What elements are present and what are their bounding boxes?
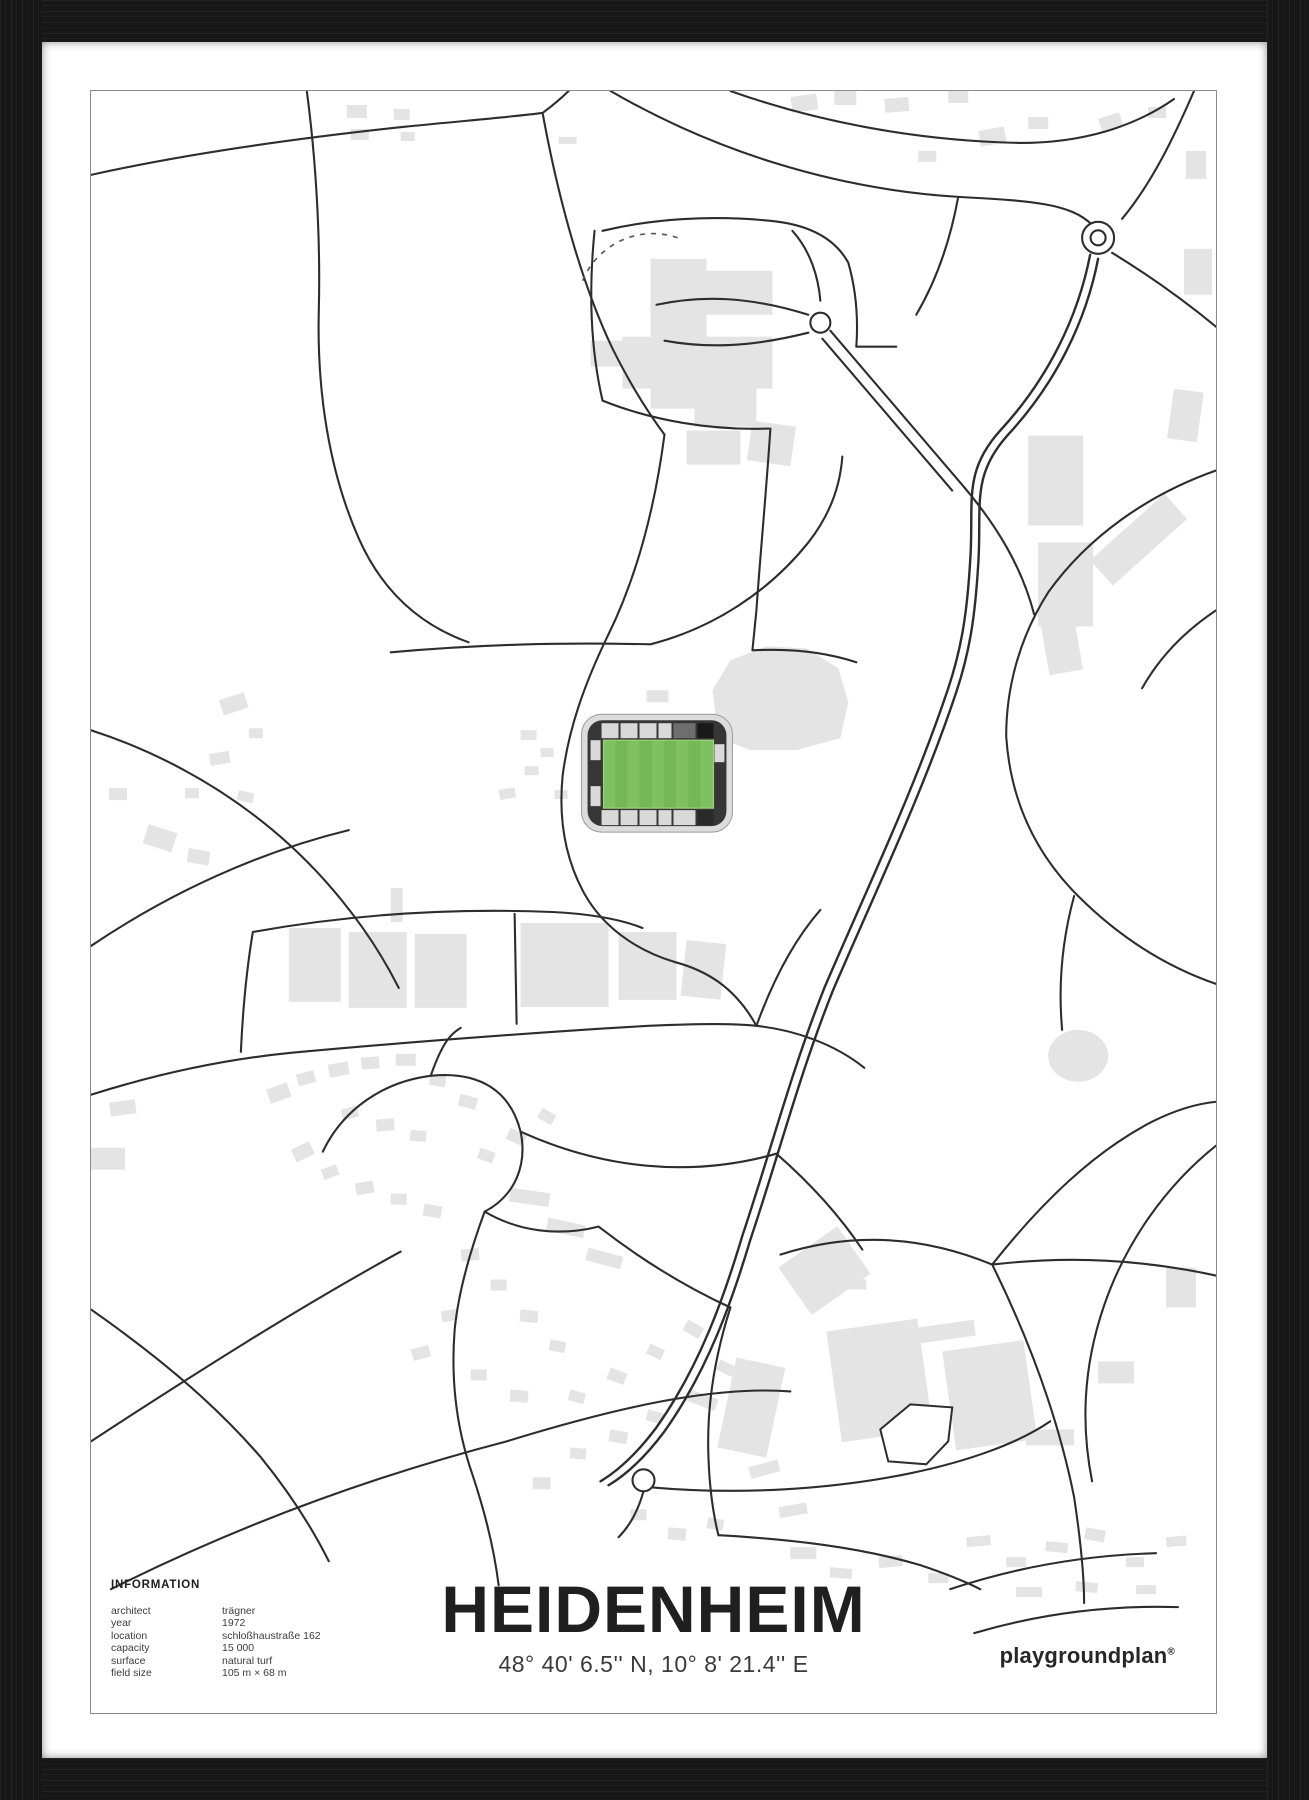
buildings-layer [91, 91, 1212, 1597]
cul-de-sac-loop [633, 1469, 655, 1491]
dual-carriageway-a [601, 255, 1091, 1481]
pond [1048, 1030, 1108, 1082]
page-title: HEIDENHEIM [91, 1571, 1216, 1647]
map-panel: INFORMATION architectträgner year1972 lo… [90, 90, 1217, 1714]
dual-carriageway-b [609, 259, 1099, 1485]
roads-left [91, 730, 864, 1095]
roundabout-large-inner [1091, 230, 1106, 245]
roads-center [391, 218, 1034, 962]
roads-bottom-left [91, 1028, 790, 1589]
roads-top-left [91, 91, 664, 642]
roads-right [1006, 471, 1216, 1482]
poster: INFORMATION architectträgner year1972 lo… [0, 0, 1309, 1800]
wood-frame-right [1267, 0, 1309, 1800]
stadium-stand-right [714, 744, 724, 762]
stadium-field [604, 740, 714, 808]
wood-frame-left [0, 0, 42, 1800]
brand-logo: playgroundplan® [1000, 1643, 1175, 1669]
stadium-stand-left [591, 740, 601, 760]
city-map [91, 91, 1216, 1713]
wood-frame-bottom [0, 1758, 1309, 1800]
registered-mark: ® [1167, 1647, 1175, 1658]
roundabout-small [810, 313, 830, 333]
residential-houses [266, 1054, 808, 1541]
stadium [582, 714, 733, 832]
wood-frame-top [0, 0, 1309, 42]
